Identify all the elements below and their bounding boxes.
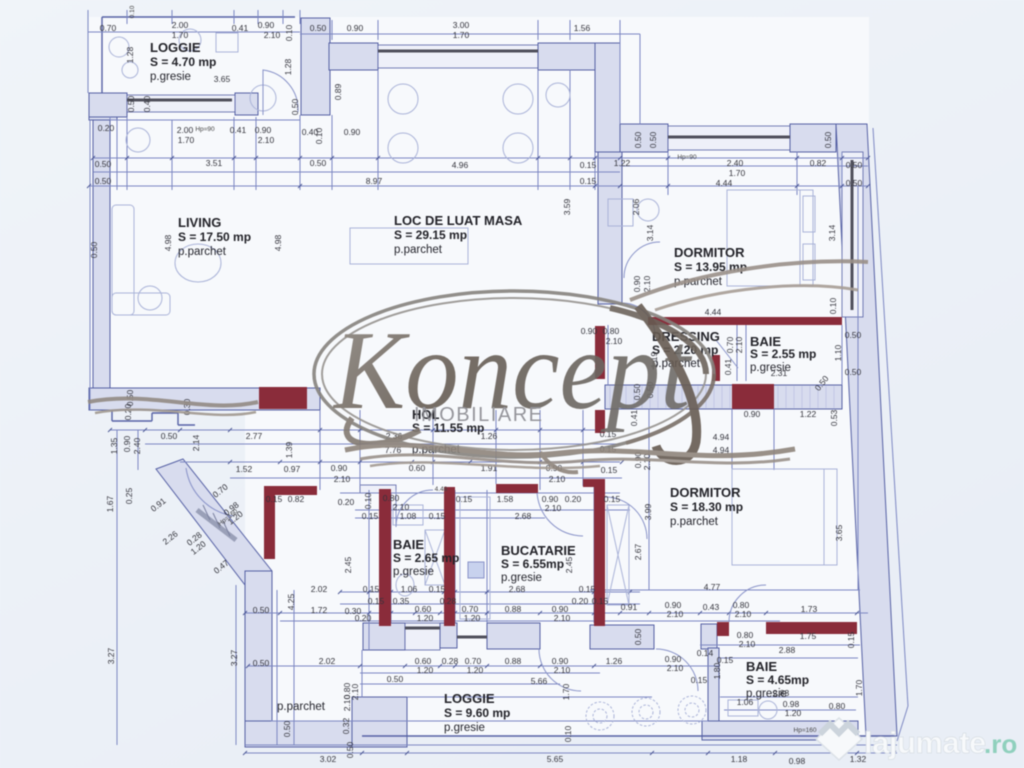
- svg-text:1.70: 1.70: [178, 135, 195, 145]
- svg-text:3.14: 3.14: [827, 224, 837, 241]
- svg-text:0.50: 0.50: [845, 330, 862, 340]
- svg-text:0.60: 0.60: [409, 463, 426, 473]
- svg-text:0.80: 0.80: [829, 701, 846, 711]
- svg-text:S = 4.70 mp: S = 4.70 mp: [150, 55, 216, 69]
- svg-text:2.10: 2.10: [642, 453, 652, 470]
- svg-text:0.50: 0.50: [648, 131, 658, 148]
- svg-text:2.45: 2.45: [343, 556, 353, 573]
- svg-text:8.97: 8.97: [366, 176, 383, 186]
- svg-text:0.70: 0.70: [100, 23, 117, 33]
- svg-text:2.00: 2.00: [172, 20, 189, 30]
- svg-text:2.14: 2.14: [191, 434, 201, 451]
- svg-text:0.14: 0.14: [697, 648, 714, 658]
- svg-text:LOC DE LUAT MASA: LOC DE LUAT MASA: [394, 213, 523, 228]
- svg-text:0.15: 0.15: [456, 494, 473, 504]
- svg-text:p.parchet: p.parchet: [178, 246, 227, 258]
- svg-text:2.00: 2.00: [177, 125, 194, 135]
- svg-text:S = 2.65 mp: S = 2.65 mp: [393, 551, 459, 565]
- svg-text:0.15: 0.15: [266, 494, 283, 504]
- svg-text:5.66: 5.66: [531, 676, 548, 686]
- svg-text:1.20: 1.20: [417, 613, 434, 623]
- svg-text:0.90: 0.90: [255, 125, 272, 135]
- svg-text:2.40: 2.40: [132, 437, 142, 454]
- svg-text:1.67: 1.67: [105, 495, 115, 512]
- svg-text:0.35: 0.35: [393, 596, 410, 606]
- svg-text:4.94: 4.94: [713, 432, 730, 442]
- svg-text:S = 6.55mp: S = 6.55mp: [501, 557, 564, 571]
- svg-text:BUCATARIE: BUCATARIE: [501, 543, 576, 558]
- svg-text:0.41: 0.41: [232, 23, 249, 33]
- svg-text:p.gresie: p.gresie: [444, 722, 485, 734]
- svg-text:0.10: 0.10: [828, 297, 838, 314]
- svg-text:3.00: 3.00: [453, 20, 470, 30]
- svg-text:1.20: 1.20: [467, 665, 484, 675]
- svg-text:0.10: 0.10: [314, 127, 324, 144]
- svg-text:2.02: 2.02: [311, 584, 328, 594]
- svg-text:0.15: 0.15: [363, 584, 380, 594]
- svg-text:2.10: 2.10: [350, 683, 360, 700]
- svg-text:0.40: 0.40: [142, 95, 152, 112]
- svg-text:0.50: 0.50: [633, 628, 643, 645]
- svg-text:lajumate: lajumate: [864, 725, 986, 760]
- svg-text:p.gresie: p.gresie: [150, 71, 191, 83]
- svg-text:1.22: 1.22: [614, 158, 631, 168]
- svg-text:4.44: 4.44: [716, 178, 733, 188]
- svg-text:3.65: 3.65: [214, 74, 231, 84]
- svg-text:0.88: 0.88: [505, 604, 522, 614]
- svg-text:2.10: 2.10: [554, 665, 571, 675]
- svg-text:0.20: 0.20: [565, 494, 582, 504]
- svg-text:0.50: 0.50: [95, 159, 112, 169]
- svg-text:0.97: 0.97: [284, 464, 301, 474]
- svg-text:0.28: 0.28: [442, 656, 459, 666]
- svg-text:0.15: 0.15: [580, 176, 597, 186]
- svg-text:0.50: 0.50: [89, 241, 99, 258]
- svg-text:3.14: 3.14: [645, 224, 655, 241]
- svg-text:2.45: 2.45: [564, 556, 574, 573]
- svg-text:0.15: 0.15: [601, 465, 618, 475]
- svg-text:3.51: 3.51: [206, 158, 223, 168]
- svg-text:S = 9.60 mp: S = 9.60 mp: [444, 706, 510, 720]
- svg-text:p.gresie: p.gresie: [393, 566, 434, 578]
- svg-text:0.50: 0.50: [823, 131, 833, 148]
- svg-text:0.20: 0.20: [98, 123, 115, 133]
- svg-text:0.88: 0.88: [505, 656, 522, 666]
- svg-text:0.90: 0.90: [344, 127, 361, 137]
- svg-text:0.50: 0.50: [846, 178, 863, 188]
- svg-text:S = 2.55 mp: S = 2.55 mp: [750, 347, 816, 361]
- svg-text:0.50: 0.50: [253, 658, 270, 668]
- svg-text:2.10: 2.10: [258, 135, 275, 145]
- svg-text:2.67: 2.67: [633, 543, 643, 560]
- svg-text:1.80: 1.80: [712, 662, 722, 679]
- svg-text:S = 4.65mp: S = 4.65mp: [746, 673, 809, 687]
- svg-text:1.39: 1.39: [284, 441, 294, 458]
- svg-text:p.gresie: p.gresie: [746, 688, 787, 700]
- svg-text:1.06: 1.06: [401, 584, 418, 594]
- svg-text:0.28: 0.28: [440, 596, 457, 606]
- svg-text:0.15: 0.15: [429, 584, 446, 594]
- svg-text:1.22: 1.22: [800, 409, 817, 419]
- svg-text:4.98: 4.98: [273, 234, 283, 251]
- svg-text:1.26: 1.26: [606, 656, 623, 666]
- svg-text:1.70: 1.70: [561, 683, 571, 700]
- svg-text:1.70: 1.70: [453, 30, 470, 40]
- svg-text:LIVING: LIVING: [178, 215, 221, 230]
- svg-text:0.98: 0.98: [789, 756, 806, 766]
- svg-text:2.68: 2.68: [515, 511, 532, 521]
- svg-text:S = 17.50 mp: S = 17.50 mp: [178, 230, 251, 244]
- svg-text:0.50: 0.50: [310, 23, 327, 33]
- svg-text:0.90: 0.90: [122, 435, 132, 452]
- svg-text:BAIE: BAIE: [746, 659, 777, 674]
- svg-text:2.68: 2.68: [509, 584, 526, 594]
- svg-text:3.59: 3.59: [562, 198, 572, 215]
- svg-text:3.27: 3.27: [229, 649, 239, 666]
- svg-text:1.28: 1.28: [283, 58, 293, 75]
- svg-text:0.50: 0.50: [387, 674, 404, 684]
- svg-text:4.77: 4.77: [704, 582, 721, 592]
- svg-text:0.15: 0.15: [579, 584, 596, 594]
- svg-text:2.88: 2.88: [779, 645, 796, 655]
- svg-text:0.10: 0.10: [129, 5, 136, 18]
- svg-text:2.10: 2.10: [334, 474, 351, 484]
- svg-text:3.99: 3.99: [643, 503, 653, 520]
- svg-text:0.90: 0.90: [331, 463, 348, 473]
- svg-text:0.15: 0.15: [368, 596, 385, 606]
- svg-text:2.02: 2.02: [319, 656, 336, 666]
- svg-text:p.gresie: p.gresie: [501, 572, 542, 584]
- svg-text:4.25: 4.25: [286, 593, 296, 610]
- svg-text:0.50: 0.50: [846, 160, 863, 170]
- svg-text:2.10: 2.10: [549, 474, 566, 484]
- svg-text:1.08: 1.08: [400, 511, 417, 521]
- svg-text:LOGGIE: LOGGIE: [150, 40, 201, 55]
- svg-text:0.90: 0.90: [347, 23, 364, 33]
- svg-text:1.20: 1.20: [464, 613, 481, 623]
- svg-text:0.32: 0.32: [341, 717, 351, 734]
- svg-text:1.58: 1.58: [497, 494, 514, 504]
- svg-text:0.10: 0.10: [284, 24, 294, 41]
- svg-text:0.90: 0.90: [744, 409, 761, 419]
- svg-text:3.65: 3.65: [834, 524, 844, 541]
- svg-text:2.10: 2.10: [264, 30, 281, 40]
- svg-text:0.50: 0.50: [845, 367, 862, 377]
- svg-text:p.parchet: p.parchet: [277, 701, 326, 713]
- svg-text:0.90: 0.90: [258, 20, 275, 30]
- svg-text:2.10: 2.10: [734, 336, 744, 353]
- svg-text:3.27: 3.27: [106, 647, 116, 664]
- svg-text:4.96: 4.96: [452, 160, 469, 170]
- svg-text:0.41: 0.41: [230, 125, 247, 135]
- svg-text:1.70: 1.70: [729, 168, 746, 178]
- svg-text:4.48: 4.48: [435, 486, 448, 493]
- svg-text:0.82: 0.82: [810, 158, 827, 168]
- svg-text:0.10: 0.10: [363, 492, 373, 509]
- svg-text:1.72: 1.72: [311, 605, 328, 615]
- svg-text:4.44: 4.44: [705, 307, 722, 317]
- svg-text:0.50: 0.50: [95, 176, 112, 186]
- svg-text:IMOBILIARE: IMOBILIARE: [414, 404, 543, 426]
- svg-text:2.06: 2.06: [631, 198, 641, 215]
- svg-text:2.10: 2.10: [642, 275, 652, 292]
- svg-text:0.25: 0.25: [124, 487, 134, 504]
- svg-text:LOGGIE: LOGGIE: [444, 691, 495, 706]
- svg-text:Hp=90: Hp=90: [677, 154, 697, 161]
- svg-text:0.15: 0.15: [604, 494, 621, 504]
- svg-text:0.15: 0.15: [362, 511, 379, 521]
- svg-text:5.65: 5.65: [547, 754, 564, 764]
- svg-text:0.10: 0.10: [563, 725, 573, 742]
- svg-text:Hp=160: Hp=160: [794, 727, 817, 734]
- svg-text:BAIE: BAIE: [393, 537, 424, 552]
- svg-text:0.50: 0.50: [633, 131, 643, 148]
- svg-text:0.50: 0.50: [126, 95, 136, 112]
- svg-text:S = 29.15 mp: S = 29.15 mp: [394, 228, 467, 242]
- svg-text:2.10: 2.10: [739, 639, 756, 649]
- svg-text:0.20: 0.20: [572, 596, 589, 606]
- svg-text:2.10: 2.10: [667, 663, 684, 673]
- svg-text:p.gresie: p.gresie: [750, 362, 791, 374]
- svg-text:.ro: .ro: [984, 729, 1017, 759]
- svg-text:0.15: 0.15: [846, 631, 856, 648]
- svg-text:1.18: 1.18: [731, 754, 748, 764]
- svg-text:0.15: 0.15: [429, 511, 446, 521]
- svg-text:DORMITOR: DORMITOR: [674, 245, 745, 260]
- svg-text:0.89: 0.89: [333, 83, 343, 100]
- svg-text:2.77: 2.77: [246, 431, 263, 441]
- svg-text:0.20: 0.20: [338, 497, 355, 507]
- svg-text:2.10: 2.10: [735, 609, 752, 619]
- svg-text:1.10: 1.10: [833, 344, 843, 361]
- svg-text:DORMITOR: DORMITOR: [670, 485, 741, 500]
- svg-text:4.98: 4.98: [163, 234, 173, 251]
- svg-text:0.20: 0.20: [123, 403, 133, 420]
- svg-text:p.parchet: p.parchet: [394, 244, 443, 256]
- svg-text:2.40: 2.40: [727, 158, 744, 168]
- svg-text:0.15: 0.15: [580, 160, 597, 170]
- svg-text:0.50: 0.50: [282, 720, 292, 737]
- svg-text:1.73: 1.73: [801, 604, 818, 614]
- svg-text:1.70: 1.70: [854, 679, 864, 696]
- svg-text:Hp=90: Hp=90: [195, 126, 215, 133]
- svg-text:0.50: 0.50: [161, 431, 178, 441]
- svg-text:0.50: 0.50: [345, 741, 355, 758]
- svg-text:S = 18.30 mp: S = 18.30 mp: [670, 500, 743, 514]
- svg-text:p.parchet: p.parchet: [670, 516, 719, 528]
- svg-text:1.20: 1.20: [417, 665, 434, 675]
- svg-text:0.15: 0.15: [691, 675, 708, 685]
- svg-text:0.50: 0.50: [310, 158, 327, 168]
- svg-text:0.20: 0.20: [355, 613, 372, 623]
- svg-text:0.91: 0.91: [621, 602, 638, 612]
- svg-text:1.35: 1.35: [109, 437, 119, 454]
- svg-text:1.52: 1.52: [236, 464, 253, 474]
- svg-text:0.43: 0.43: [703, 602, 720, 612]
- svg-text:0.15: 0.15: [592, 596, 609, 606]
- svg-text:2.10: 2.10: [554, 613, 571, 623]
- svg-text:0.50: 0.50: [290, 98, 300, 115]
- svg-text:2.10: 2.10: [545, 503, 562, 513]
- svg-text:1.20: 1.20: [785, 708, 802, 718]
- svg-text:0.53: 0.53: [829, 409, 839, 426]
- svg-text:1.70: 1.70: [172, 30, 189, 40]
- svg-text:0.50: 0.50: [253, 605, 270, 615]
- svg-text:2.10: 2.10: [667, 609, 684, 619]
- svg-text:3.02: 3.02: [320, 754, 337, 764]
- svg-text:0.82: 0.82: [288, 494, 305, 504]
- svg-text:0.41: 0.41: [723, 358, 733, 375]
- svg-text:1.75: 1.75: [800, 631, 817, 641]
- svg-text:1.56: 1.56: [574, 23, 591, 33]
- svg-text:0.90: 0.90: [632, 275, 642, 292]
- svg-text:1.28: 1.28: [125, 46, 135, 63]
